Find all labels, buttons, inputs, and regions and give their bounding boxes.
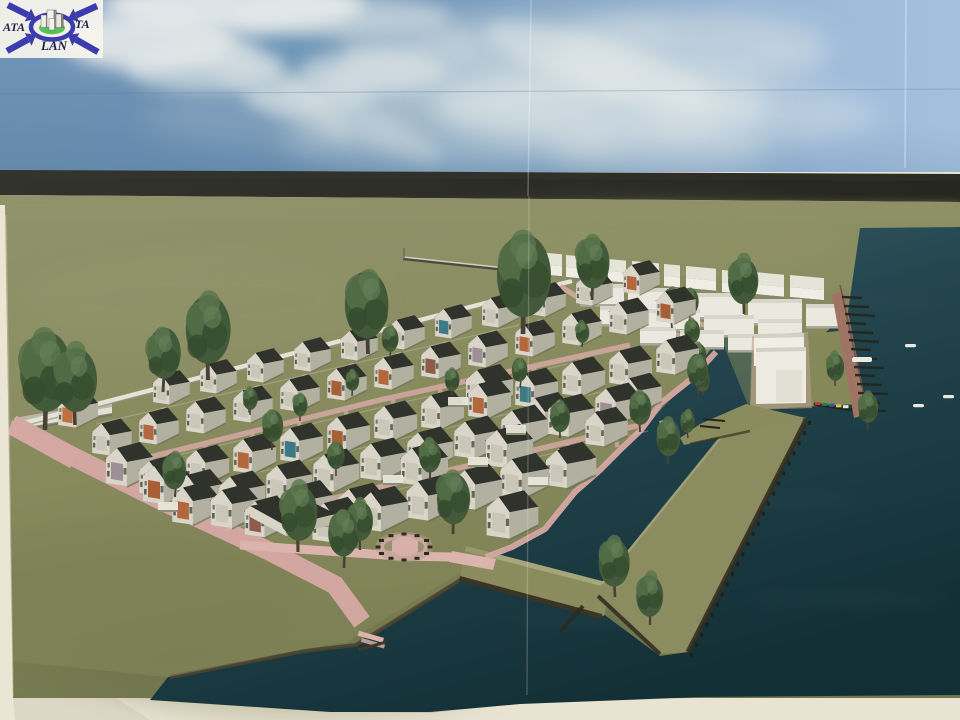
svg-text:LAN: LAN [40, 38, 68, 53]
svg-text:ATA: ATA [2, 20, 25, 34]
svg-text:TA: TA [75, 17, 90, 31]
